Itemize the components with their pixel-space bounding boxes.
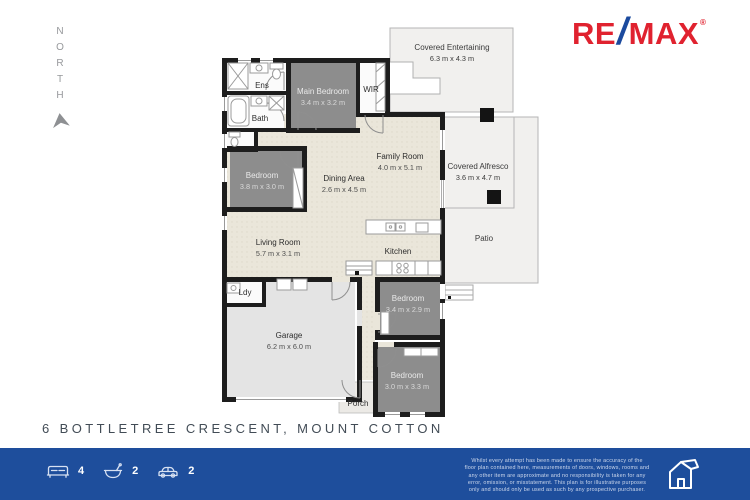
- label-bedroom-bottom: Bedroom: [391, 371, 424, 380]
- label-family: Family Room: [376, 152, 423, 161]
- label-laundry: Ldy: [239, 288, 252, 297]
- label-bedroom-mid: Bedroom: [392, 294, 425, 303]
- car-icon: [156, 462, 180, 479]
- bath-count: 2: [132, 465, 138, 477]
- label-wir: WIR: [363, 85, 379, 94]
- alfresco-post: [480, 108, 494, 122]
- bath-icon: [102, 462, 124, 479]
- floorplan-page: NORTH RE / MAX ®: [0, 0, 750, 500]
- alfresco-post: [487, 190, 501, 204]
- dims-bedroom-bottom: 3.0 m x 3.3 m: [385, 382, 429, 391]
- dims-bedroom-mid: 3.4 m x 2.9 m: [386, 305, 430, 314]
- dims-bedroom-left: 3.8 m x 3.0 m: [240, 182, 284, 191]
- footer-bar: 4 2 2 Whilst every attempt has been made…: [0, 448, 750, 500]
- dims-main-bedroom: 3.4 m x 3.2 m: [301, 98, 345, 107]
- bed-count: 4: [78, 465, 84, 477]
- label-ens: Ens: [255, 81, 269, 90]
- sliding-door: [440, 180, 445, 208]
- label-garage: Garage: [276, 331, 303, 340]
- dims-covered-entertaining: 6.3 m x 4.3 m: [430, 54, 474, 63]
- car-count: 2: [188, 465, 194, 477]
- dims-living: 5.7 m x 3.1 m: [256, 249, 300, 258]
- house-logo: [663, 455, 703, 498]
- label-alfresco: Covered Alfresco: [448, 162, 509, 171]
- label-bedroom-left: Bedroom: [246, 171, 279, 180]
- dims-garage: 6.2 m x 6.0 m: [267, 342, 311, 351]
- label-main-bedroom: Main Bedroom: [297, 87, 349, 96]
- property-features: 4 2 2: [46, 462, 204, 479]
- disclaimer-text: Whilst every attempt has been made to en…: [447, 458, 667, 494]
- dims-alfresco: 3.6 m x 4.7 m: [456, 173, 500, 182]
- dims-dining: 2.6 m x 4.5 m: [322, 185, 366, 194]
- property-address: 6 BOTTLETREE CRESCENT, MOUNT COTTON: [42, 421, 444, 436]
- label-covered-entertaining: Covered Entertaining: [414, 43, 489, 52]
- label-dining: Dining Area: [323, 174, 365, 183]
- house-icon: [663, 455, 703, 493]
- external-stairs: [445, 285, 473, 300]
- label-living: Living Room: [256, 238, 301, 247]
- bed-icon: [46, 462, 70, 479]
- label-patio: Patio: [475, 234, 494, 243]
- label-porch: Porch: [348, 399, 369, 408]
- label-bath: Bath: [252, 114, 268, 123]
- label-kitchen: Kitchen: [385, 247, 412, 256]
- dims-family: 4.0 m x 5.1 m: [378, 163, 422, 172]
